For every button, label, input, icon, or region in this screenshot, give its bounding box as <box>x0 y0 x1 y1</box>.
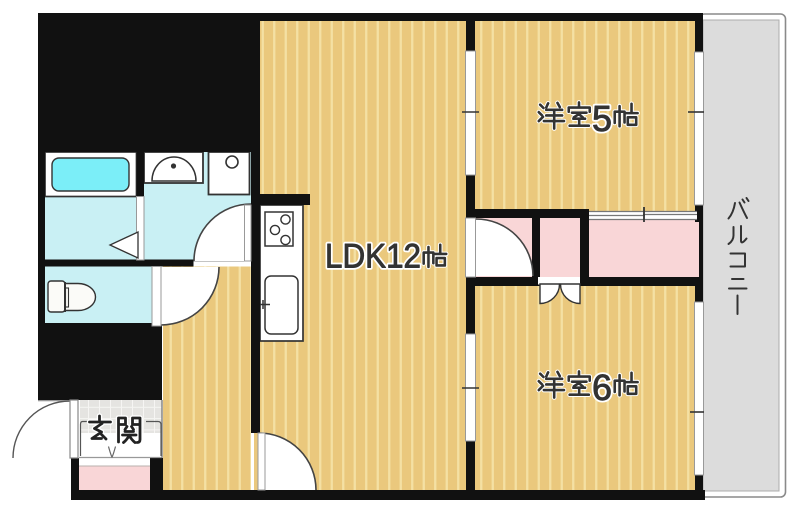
svg-text:5: 5 <box>592 98 612 139</box>
svg-text:6: 6 <box>592 367 612 408</box>
svg-text:LDK12: LDK12 <box>325 238 421 276</box>
